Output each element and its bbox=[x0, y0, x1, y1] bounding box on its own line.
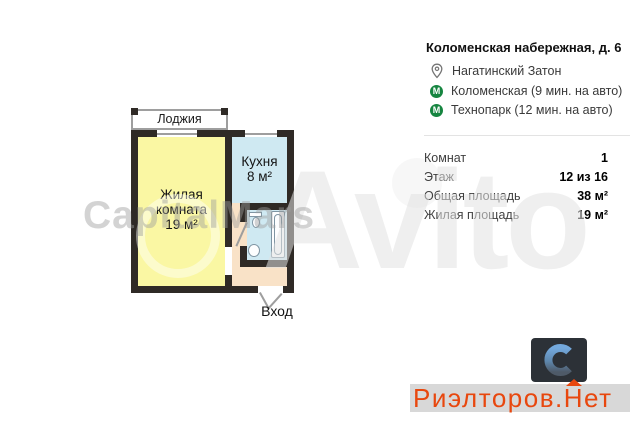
loggia-corner-left bbox=[131, 108, 138, 115]
param-label: Жилая площадь bbox=[424, 208, 519, 222]
district-row: Нагатинский Затон bbox=[430, 63, 561, 79]
kitchen-name: Кухня bbox=[232, 154, 287, 169]
metro-row-2: М Технопарк (12 мин. на авто) bbox=[430, 102, 613, 118]
district-name: Нагатинский Затон bbox=[452, 64, 561, 78]
param-value: 12 из 16 bbox=[559, 170, 608, 184]
metro-icon: М bbox=[430, 85, 443, 98]
site-name-prefix: Риэлторов. bbox=[413, 383, 564, 413]
address-title: Коломенская набережная, д. 6 bbox=[426, 40, 640, 55]
living-room-name-1: Жилая bbox=[138, 187, 225, 202]
living-room-area: 19 м² bbox=[138, 217, 225, 232]
bathtub-inner-icon bbox=[274, 214, 282, 255]
param-row-floor: Этаж 12 из 16 bbox=[424, 170, 608, 184]
wall-right bbox=[287, 130, 294, 293]
bath-wall-left-1 bbox=[240, 203, 247, 222]
wall-bottom-1 bbox=[131, 286, 258, 293]
param-row-total-area: Общая площадь 38 м² bbox=[424, 189, 608, 203]
wall-bottom-2 bbox=[283, 286, 294, 293]
window-kitchen bbox=[245, 133, 277, 135]
wall-inner-lower bbox=[225, 275, 232, 293]
bath-wall-bottom bbox=[240, 260, 287, 267]
house-roof-icon bbox=[566, 379, 582, 386]
room-loggia: Лоджия bbox=[131, 109, 228, 130]
entrance-text: Вход bbox=[247, 304, 307, 319]
metro-name-2: Технопарк (12 мин. на авто) bbox=[451, 103, 613, 117]
loggia-label: Лоджия bbox=[157, 112, 201, 126]
site-name-suffix: ет bbox=[584, 383, 613, 413]
kitchen-label: Кухня 8 м² bbox=[232, 154, 287, 184]
sink-icon bbox=[248, 244, 260, 257]
metro-row-1: М Коломенская (9 мин. на авто) bbox=[430, 83, 622, 99]
param-row-rooms: Комнат 1 bbox=[424, 151, 608, 165]
living-room-label: Жилая комната 19 м² bbox=[138, 187, 225, 232]
param-value: 1 bbox=[601, 151, 608, 165]
metro-name-1: Коломенская (9 мин. на авто) bbox=[451, 84, 622, 98]
loggia-corner-right bbox=[221, 108, 228, 115]
logo-c-icon bbox=[539, 342, 579, 378]
entrance-label: Вход bbox=[247, 304, 307, 319]
location-pin-icon bbox=[430, 63, 444, 79]
bath-wall-left-2 bbox=[240, 246, 247, 260]
wall-inner-upper bbox=[225, 130, 232, 247]
param-label: Общая площадь bbox=[424, 189, 521, 203]
param-row-living-area: Жилая площадь 19 м² bbox=[424, 208, 608, 222]
site-banner: Риэлторов.Нет bbox=[410, 384, 630, 412]
bath-wall-top bbox=[240, 203, 287, 210]
agency-logo bbox=[531, 338, 587, 382]
kitchen-area: 8 м² bbox=[232, 169, 287, 184]
listing-image: Лоджия Жилая bbox=[0, 0, 640, 426]
divider-line bbox=[424, 135, 630, 136]
param-value: 38 м² bbox=[577, 189, 608, 203]
bathtub-icon bbox=[271, 211, 285, 258]
toilet-bowl-icon bbox=[252, 217, 260, 228]
param-label: Этаж bbox=[424, 170, 454, 184]
house-letter-text: Н bbox=[564, 383, 584, 413]
wall-top-2 bbox=[197, 130, 245, 137]
param-value: 19 м² bbox=[577, 208, 608, 222]
param-label: Комнат bbox=[424, 151, 466, 165]
metro-icon: М bbox=[430, 104, 443, 117]
wall-left bbox=[131, 130, 138, 293]
living-room-name-2: комната bbox=[138, 202, 225, 217]
window-living bbox=[157, 133, 197, 135]
site-name-house-letter: Н bbox=[564, 384, 584, 412]
floor-plan: Лоджия Жилая bbox=[131, 108, 294, 326]
